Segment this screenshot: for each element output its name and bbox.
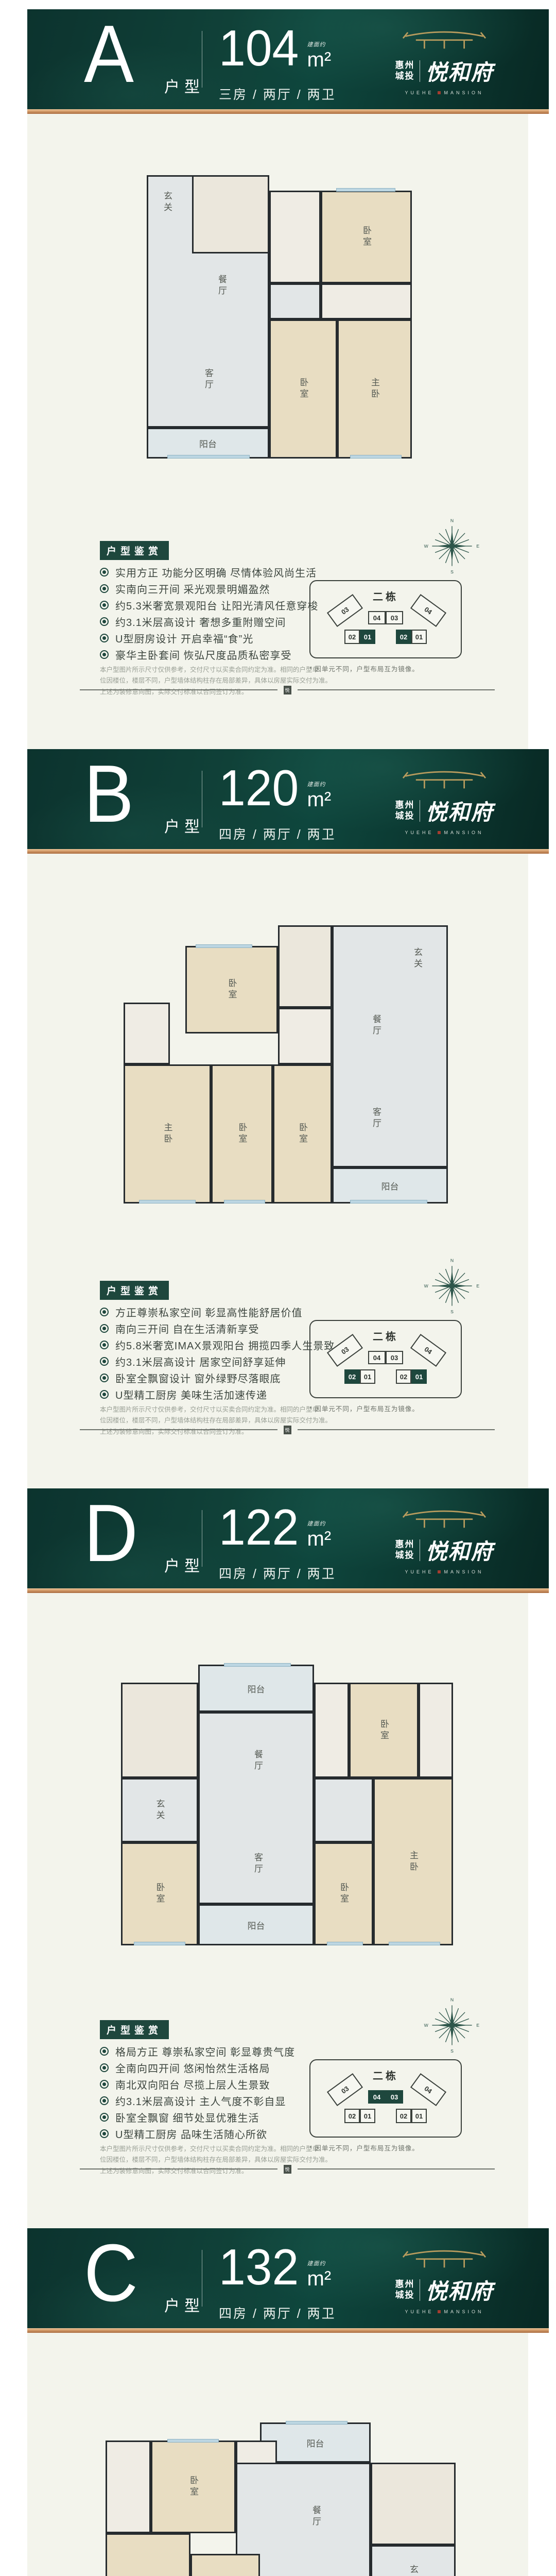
type-suffix: 户型 [164, 74, 204, 97]
unit-cell: 02 [396, 630, 411, 644]
window-strip [139, 1200, 196, 1204]
feature-item: 约5.8米奢宽IMAX景观阳台 拥揽四季人生景致 [100, 1336, 335, 1353]
rooms-desc: 四房 / 两厅 / 两卫 [219, 824, 336, 843]
bullet-icon [100, 1308, 109, 1316]
bullet-icon [100, 601, 109, 609]
bullet-icon [100, 634, 109, 642]
logo-separator [420, 2279, 420, 2301]
building-key-box: 二栋 03 04 04 03 02 01 02 01 [309, 1320, 462, 1398]
room-master-bath [124, 1003, 170, 1064]
rooms-desc: 三房 / 两厅 / 两卫 [219, 84, 336, 103]
room-hall: 餐厅 客厅 [198, 1712, 314, 1904]
rooms-desc: 四房 / 两厅 / 两卫 [219, 2303, 336, 2322]
feature-item: U型精工厨房 品味生活随心所欲 [100, 2125, 295, 2142]
bullet-icon [100, 1357, 109, 1366]
room-bedroom: 卧室 [185, 946, 278, 1033]
room-bedroom: 卧室 [349, 1683, 419, 1778]
feature-item: 全南向四开间 悠闲怡然生活格局 [100, 2059, 295, 2076]
section-d: D 户型 122 建面约m² 四房 / 两厅 / 两卫 惠州城投 [0, 1479, 556, 2219]
svg-text:S: S [450, 1309, 454, 1314]
area-number: 122 [219, 1502, 299, 1552]
bullet-icon [100, 2047, 109, 2056]
feature-item: U型精工厨房 美味生活加速传递 [100, 1386, 335, 1402]
room-balcony: 阳台 [332, 1167, 448, 1204]
bullet-icon [100, 2113, 109, 2122]
mirror-note: * 因单元不同，户型布局互为镜像。 [309, 1403, 419, 1413]
banner-divider [202, 2250, 202, 2307]
section-c: C 户型 132 建面约m² 四房 / 两厅 / 两卫 惠州城投 [0, 2219, 556, 2576]
unit-cell: 04 [368, 611, 386, 624]
poster-page: A 户型 104 建面约m² 三房 / 两厅 / 两卫 惠州城投 [0, 0, 556, 2576]
room-corridor [314, 1778, 373, 1842]
window-strip [224, 1663, 291, 1667]
brand-logo: 惠州城投 悦和府 YUEHEMANSION [380, 27, 509, 95]
section-divider: 悦 [80, 1425, 495, 1434]
feature-item: 约5.3米奢宽景观阳台 让阳光清风任意穿梭 [100, 597, 318, 613]
unit-cell: 03 [386, 1351, 403, 1364]
feature-item: U型厨房设计 开启幸福“食”光 [100, 630, 318, 646]
room-bedroom: 卧室 [121, 1842, 198, 1945]
unit-cell: 02 [344, 630, 360, 644]
section-divider: 悦 [80, 685, 495, 694]
red-square-icon [438, 1570, 441, 1573]
brand-name: 悦和府 [425, 795, 493, 826]
compass-icon: N S W E [422, 1255, 482, 1315]
bullet-icon [100, 617, 109, 626]
type-letter: A [84, 13, 135, 95]
unit-cell: 01 [360, 2109, 375, 2123]
brand-city-line1: 惠州 [395, 60, 414, 70]
feature-item: 实用方正 功能分区明确 尽情体验风尚生活 [100, 564, 318, 580]
floor-plan-d: 阳台 餐厅 客厅 卧室 玄关 卧室 卧室 主卧 阳台 [121, 1665, 453, 1945]
type-letter: C [84, 2232, 139, 2314]
section-b: B 户型 120 建面约m² 四房 / 两厅 / 两卫 惠州城投 [0, 740, 556, 1480]
unit-cell: 01 [360, 630, 375, 644]
room-master: 主卧 [373, 1778, 453, 1945]
room-kitchen [192, 175, 269, 253]
bullet-icon [100, 584, 109, 593]
room-hall: 玄关 餐厅 客厅 [332, 925, 448, 1167]
room-balcony: 阳台 [198, 1904, 314, 1945]
svg-text:S: S [450, 569, 454, 574]
feature-item: 卧室全飘窗设计 窗外绿野尽落眼底 [100, 1369, 335, 1386]
floor-plan-b: 玄关 餐厅 客厅 卧室 主卧 卧室 卧室 阳台 [124, 925, 448, 1204]
bullet-icon [100, 1341, 109, 1349]
copper-rule [27, 849, 549, 854]
unit-cell: 03 [386, 2090, 403, 2104]
room-bedroom: 卧室 [321, 191, 412, 283]
feature-list: 实用方正 功能分区明确 尽情体验风尚生活 实南向三开间 采光观景明媚盈然 约5.… [100, 564, 318, 663]
area-unit: m² [307, 48, 332, 71]
building-title: 二栋 [310, 588, 461, 603]
logo-separator [420, 60, 420, 82]
room-bedroom: 卧室 [314, 1842, 373, 1945]
brand-en-right: MANSION [444, 90, 484, 95]
type-letter: B [84, 753, 135, 835]
brand-name: 悦和府 [425, 2274, 493, 2306]
room-bedroom: 卧室 [269, 319, 337, 459]
window-strip [167, 2439, 219, 2443]
unit-cell: 02 [396, 2109, 411, 2123]
type-letter: D [84, 1493, 139, 1574]
appreciation-badge: 户型鉴赏 [100, 2020, 169, 2039]
svg-text:N: N [450, 518, 454, 523]
pavilion-logo-icon [401, 767, 488, 790]
window-strip [389, 1942, 440, 1945]
building-key-box: 二栋 03 04 04 03 02 01 02 01 [309, 580, 462, 658]
room-balcony: 阳台 [147, 428, 269, 459]
area-number: 132 [219, 2242, 299, 2292]
unit-cell: 01 [411, 1369, 427, 1384]
floor-plan-a: 玄关 餐厅 客厅 卧室 卧室 主卧 阳台 [147, 175, 412, 459]
room-master-bath [321, 283, 412, 319]
svg-text:E: E [476, 2023, 479, 2028]
bullet-icon [100, 568, 109, 577]
brand-logo: 惠州城投 悦和府 YUEHEMANSION [380, 767, 509, 835]
brand-city-line2: 城投 [395, 71, 414, 81]
feature-list: 方正尊崇私家空间 彰显高性能舒居价值 南向三开间 自在生活清新享受 约5.8米奢… [100, 1303, 335, 1402]
room-master-bath [419, 1683, 453, 1778]
room-bath [106, 2441, 151, 2533]
banner-a: A 户型 104 建面约m² 三房 / 两厅 / 两卫 惠州城投 [27, 9, 549, 109]
mirror-note: * 因单元不同，户型布局互为镜像。 [309, 664, 419, 673]
pavilion-logo-icon [401, 27, 488, 50]
svg-text:S: S [450, 2048, 454, 2054]
red-square-icon [438, 831, 441, 834]
compass-icon: N S W E [422, 1994, 482, 2054]
feature-item: 约3.1米层高设计 居家空间舒享延伸 [100, 1353, 335, 1369]
svg-text:W: W [424, 544, 429, 549]
window-strip [196, 944, 252, 948]
unit-cell: 04 [368, 1351, 386, 1364]
banner-c: C 户型 132 建面约m² 四房 / 两厅 / 两卫 惠州城投 [27, 2228, 549, 2328]
pavilion-logo-icon [401, 2246, 488, 2269]
building-key-box: 二栋 03 04 04 03 02 01 02 01 [309, 2059, 462, 2138]
unit-cell: 02 [344, 2109, 360, 2123]
room-corridor [269, 283, 321, 319]
svg-text:N: N [450, 1997, 454, 2003]
room-kitchen [278, 925, 332, 1008]
room-bedroom: 卧室 [151, 2441, 236, 2533]
banner-divider [202, 771, 202, 827]
bullet-icon [100, 1324, 109, 1333]
window-strip [327, 1942, 363, 1945]
type-suffix: 户型 [164, 1553, 204, 1576]
bullet-icon [100, 2063, 109, 2072]
svg-text:E: E [476, 544, 479, 549]
brand-name: 悦和府 [425, 55, 493, 87]
room-kitchen [371, 2463, 456, 2545]
copper-rule [27, 2328, 549, 2333]
feature-item: 方正尊崇私家空间 彰显高性能舒居价值 [100, 1303, 335, 1320]
room-bedroom: 卧室 [273, 1064, 332, 1204]
section-divider: 悦 [80, 2164, 495, 2174]
room-master: 主卧 [337, 319, 412, 459]
svg-text:W: W [424, 2023, 429, 2028]
window-strip [167, 455, 250, 459]
feature-item: 实南向三开间 采光观景明媚盈然 [100, 580, 318, 597]
banner-divider [202, 1510, 202, 1567]
room-bath [269, 191, 321, 283]
brand-en-left: YUEHE [405, 90, 433, 95]
logo-separator [420, 1539, 420, 1561]
red-square-icon [438, 2310, 441, 2313]
room-bedroom: 卧室 [211, 1064, 273, 1204]
red-square-icon [438, 91, 441, 94]
window-strip [286, 2421, 347, 2425]
window-strip [224, 1200, 265, 1204]
section-a: A 户型 104 建面约m² 三房 / 两厅 / 两卫 惠州城投 [0, 0, 556, 740]
room-entry: 玄关 [371, 2545, 456, 2576]
feature-item: 格局方正 尊崇私家空间 彰显尊贵气度 [100, 2043, 295, 2059]
unit-cell: 02 [344, 1369, 360, 1384]
room-master: 主卧 [106, 2533, 190, 2576]
compass-icon: N S W E [422, 515, 482, 575]
window-strip [350, 455, 402, 459]
feature-item: 约3.1米层高设计 奢想多重附赠空间 [100, 613, 318, 630]
feature-item: 南向三开间 自在生活清新享受 [100, 1320, 335, 1336]
pavilion-logo-icon [401, 1506, 488, 1530]
window-strip [336, 188, 395, 192]
bullet-icon [100, 650, 109, 659]
svg-text:N: N [450, 1258, 454, 1263]
unit-cell: 02 [396, 1369, 411, 1384]
feature-item: 卧室全飘窗 细节处显优雅生活 [100, 2109, 295, 2125]
room-bath [278, 1008, 332, 1064]
appreciation-badge: 户型鉴赏 [100, 1281, 169, 1300]
copper-rule [27, 109, 549, 114]
brand-name: 悦和府 [425, 1534, 493, 1566]
banner-divider [202, 31, 202, 88]
banner-d: D 户型 122 建面约m² 四房 / 两厅 / 两卫 惠州城投 [27, 1488, 549, 1588]
unit-cell: 01 [360, 1369, 375, 1384]
area-note: 建面约 [307, 40, 326, 48]
logo-separator [420, 800, 420, 822]
appreciation-badge: 户型鉴赏 [100, 541, 169, 560]
unit-cell: 04 [368, 2090, 386, 2104]
seal-icon: 悦 [284, 686, 291, 694]
room-entry-label: 玄关 [161, 191, 173, 214]
room-living-label: 客厅 [202, 368, 215, 391]
mirror-note: * 因单元不同，户型布局互为镜像。 [309, 2143, 419, 2153]
seal-icon: 悦 [284, 1426, 291, 1434]
room-balcony: 阳台 [198, 1665, 314, 1712]
room-dining-label: 餐厅 [215, 275, 228, 297]
area-number: 120 [219, 762, 299, 813]
svg-text:E: E [476, 1283, 479, 1289]
unit-cell: 01 [411, 630, 427, 644]
rooms-desc: 四房 / 两厅 / 两卫 [219, 1564, 336, 1582]
unit-cell: 01 [411, 2109, 427, 2123]
room-bath [314, 1683, 349, 1778]
type-suffix: 户型 [164, 814, 204, 837]
area-group: 104 建面约m² [219, 23, 331, 73]
area-number: 104 [219, 23, 299, 73]
floor-plan-c: 阳台 卧室 餐厅 客厅 玄关 主卧 卧室 卧室 阳台 [106, 2422, 456, 2576]
room-master: 主卧 [124, 1064, 211, 1204]
bullet-icon [100, 2129, 109, 2138]
room-kitchen [121, 1683, 198, 1778]
window-strip [134, 1942, 185, 1945]
window-strip [350, 1200, 427, 1204]
copper-rule [27, 1588, 549, 1593]
bullet-icon [100, 1374, 109, 1382]
feature-item: 约3.1米层高设计 主人气度不彰自显 [100, 2092, 295, 2109]
feature-item: 南北双向阳台 尽揽上层人生景致 [100, 2076, 295, 2092]
bullet-icon [100, 2080, 109, 2089]
room-entry: 玄关 [121, 1778, 198, 1842]
seal-icon: 悦 [284, 2165, 291, 2174]
bullet-icon [100, 2096, 109, 2105]
feature-list: 格局方正 尊崇私家空间 彰显尊贵气度 全南向四开间 悠闲怡然生活格局 南北双向阳… [100, 2043, 295, 2142]
svg-text:W: W [424, 1283, 429, 1289]
brand-logo: 惠州城投 悦和府 YUEHEMANSION [380, 1506, 509, 1574]
banner-b: B 户型 120 建面约m² 四房 / 两厅 / 两卫 惠州城投 [27, 749, 549, 849]
brand-logo: 惠州城投 悦和府 YUEHEMANSION [380, 2246, 509, 2314]
bullet-icon [100, 1390, 109, 1399]
feature-item: 豪华主卧套间 恢弘尺度品质私密享受 [100, 646, 318, 663]
type-suffix: 户型 [164, 2293, 204, 2316]
unit-cell: 03 [386, 611, 403, 624]
room-bedroom: 卧室 [190, 2554, 260, 2576]
